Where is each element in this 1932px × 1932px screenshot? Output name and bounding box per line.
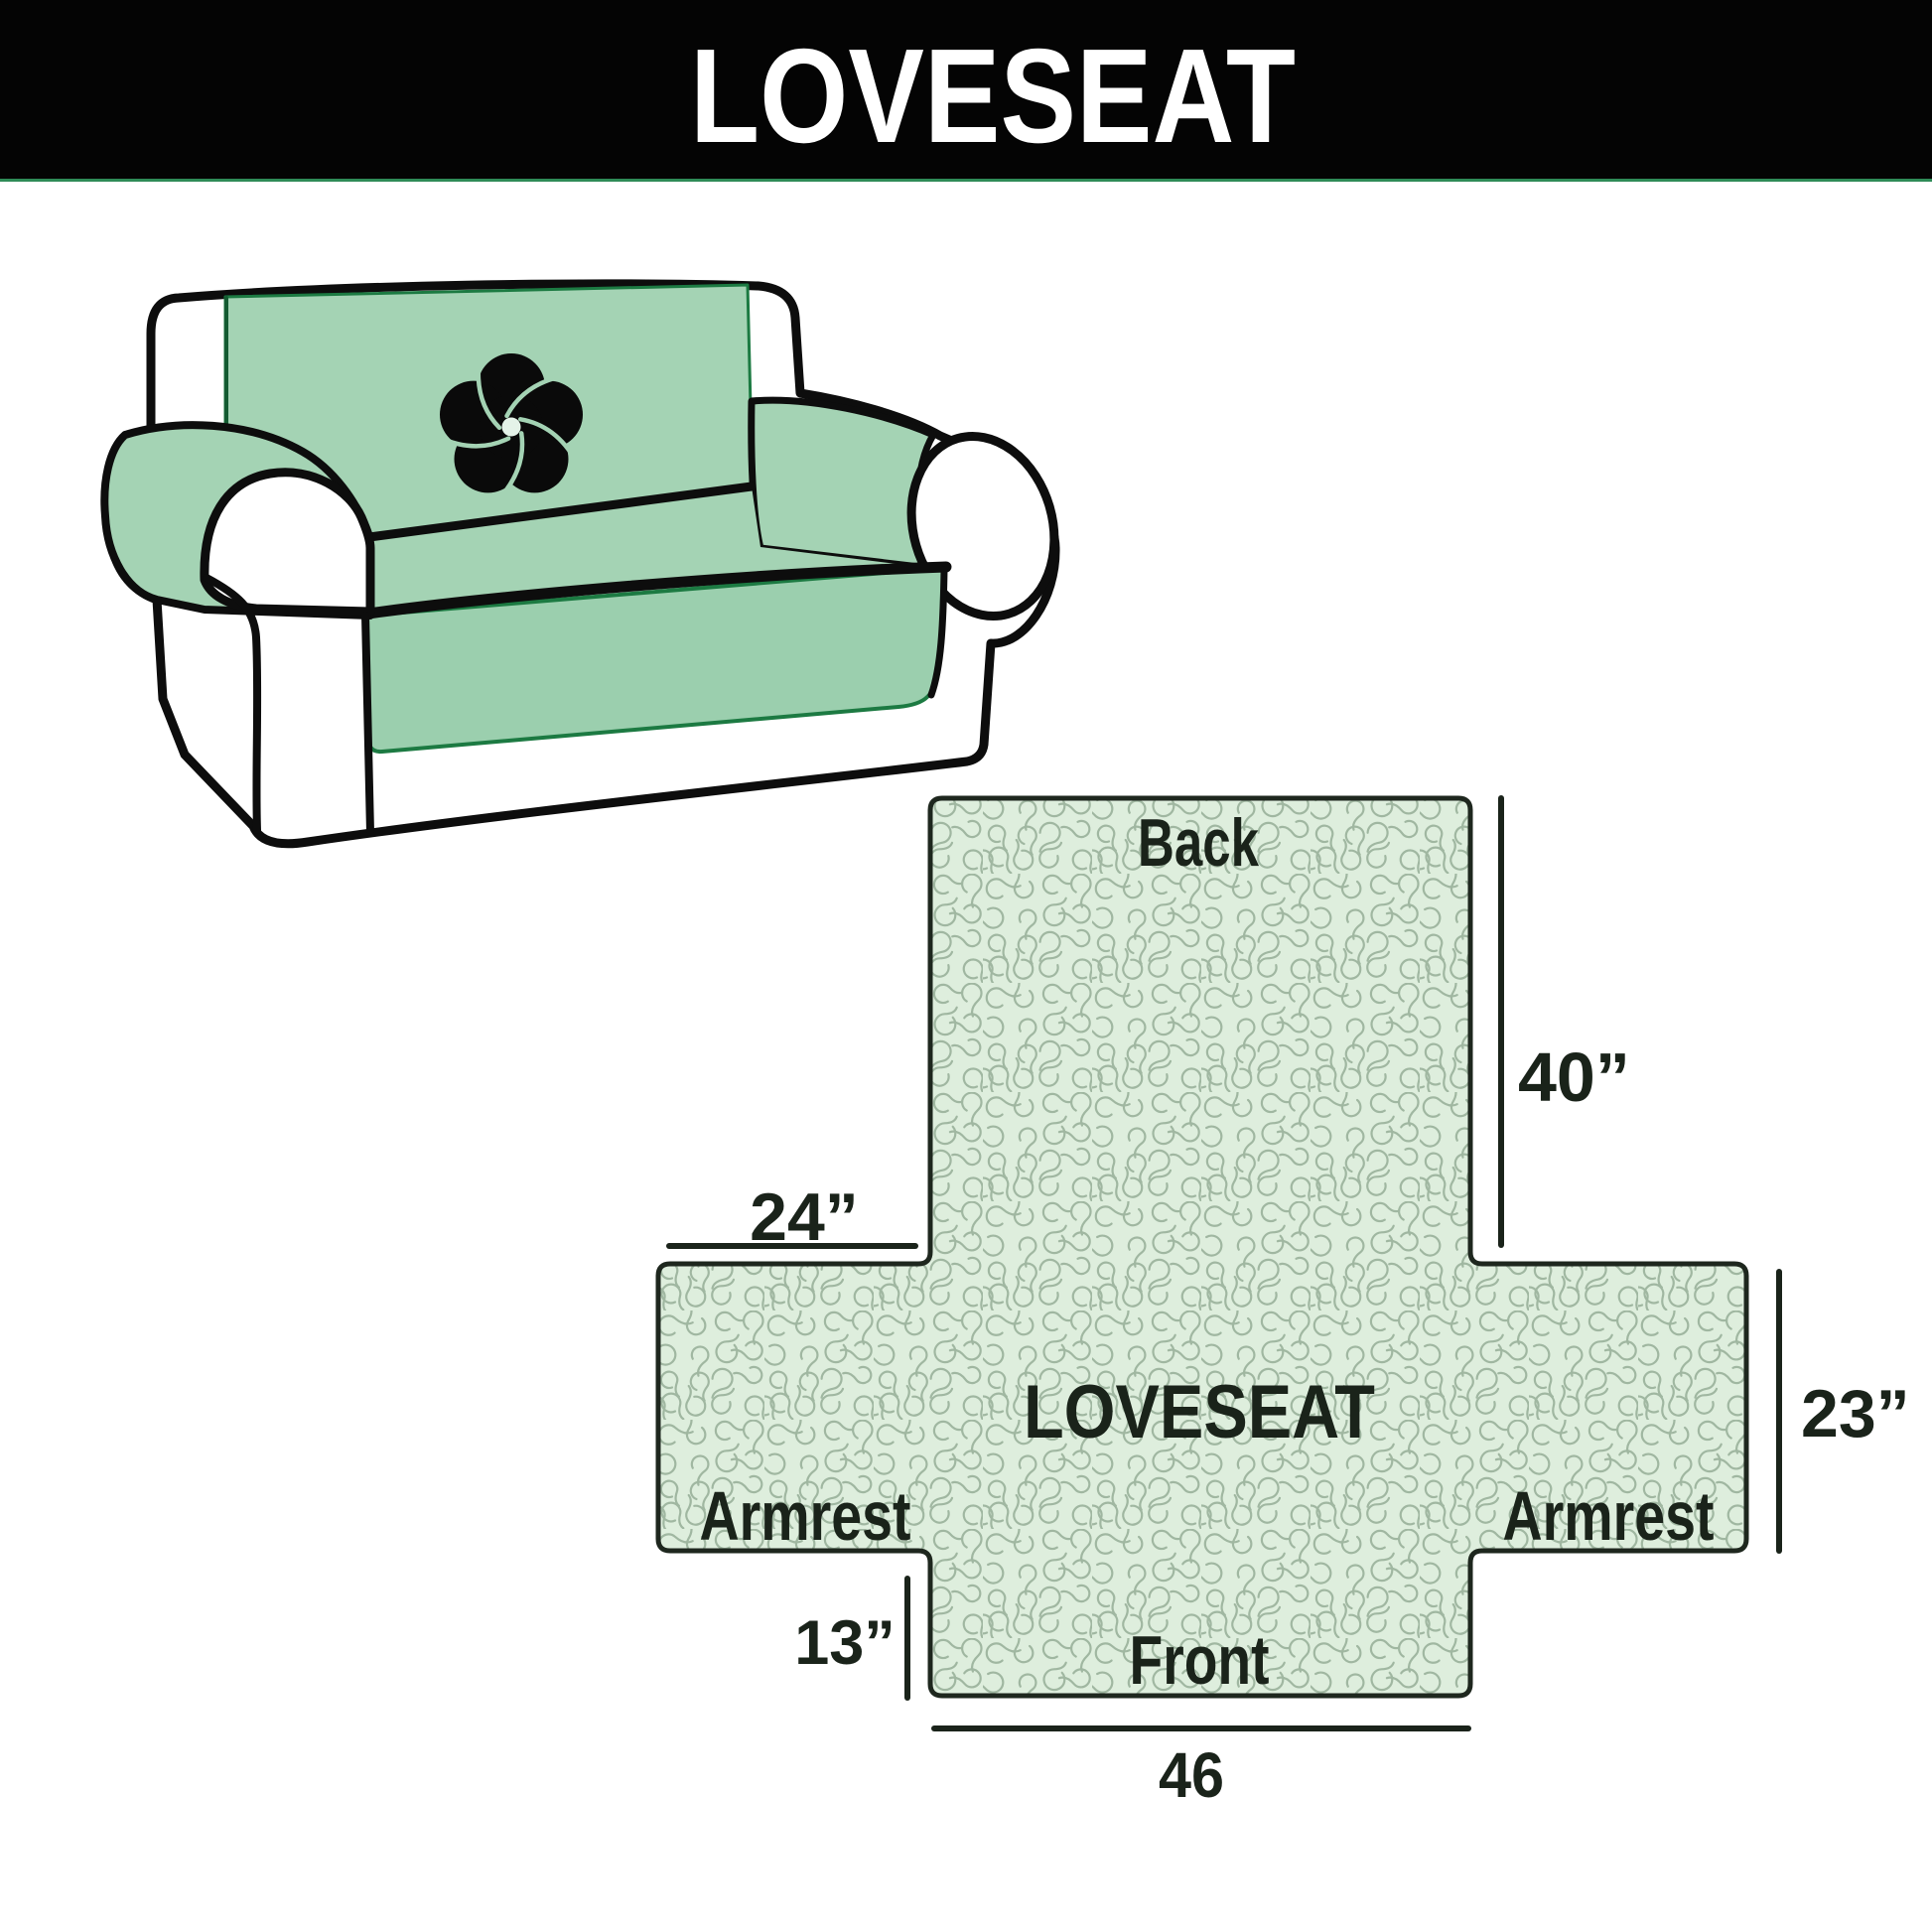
svg-text:Armrest: Armrest: [1503, 1477, 1715, 1555]
svg-text:Armrest: Armrest: [700, 1477, 911, 1555]
svg-text:Back: Back: [1138, 805, 1259, 881]
svg-text:46: 46: [1159, 1739, 1224, 1811]
svg-text:23”: 23”: [1801, 1376, 1910, 1451]
svg-text:40”: 40”: [1518, 1038, 1630, 1116]
svg-text:LOVESEAT: LOVESEAT: [690, 21, 1296, 171]
svg-text:13”: 13”: [794, 1608, 896, 1678]
svg-text:Front: Front: [1130, 1621, 1270, 1699]
svg-text:LOVESEAT: LOVESEAT: [1024, 1370, 1375, 1454]
